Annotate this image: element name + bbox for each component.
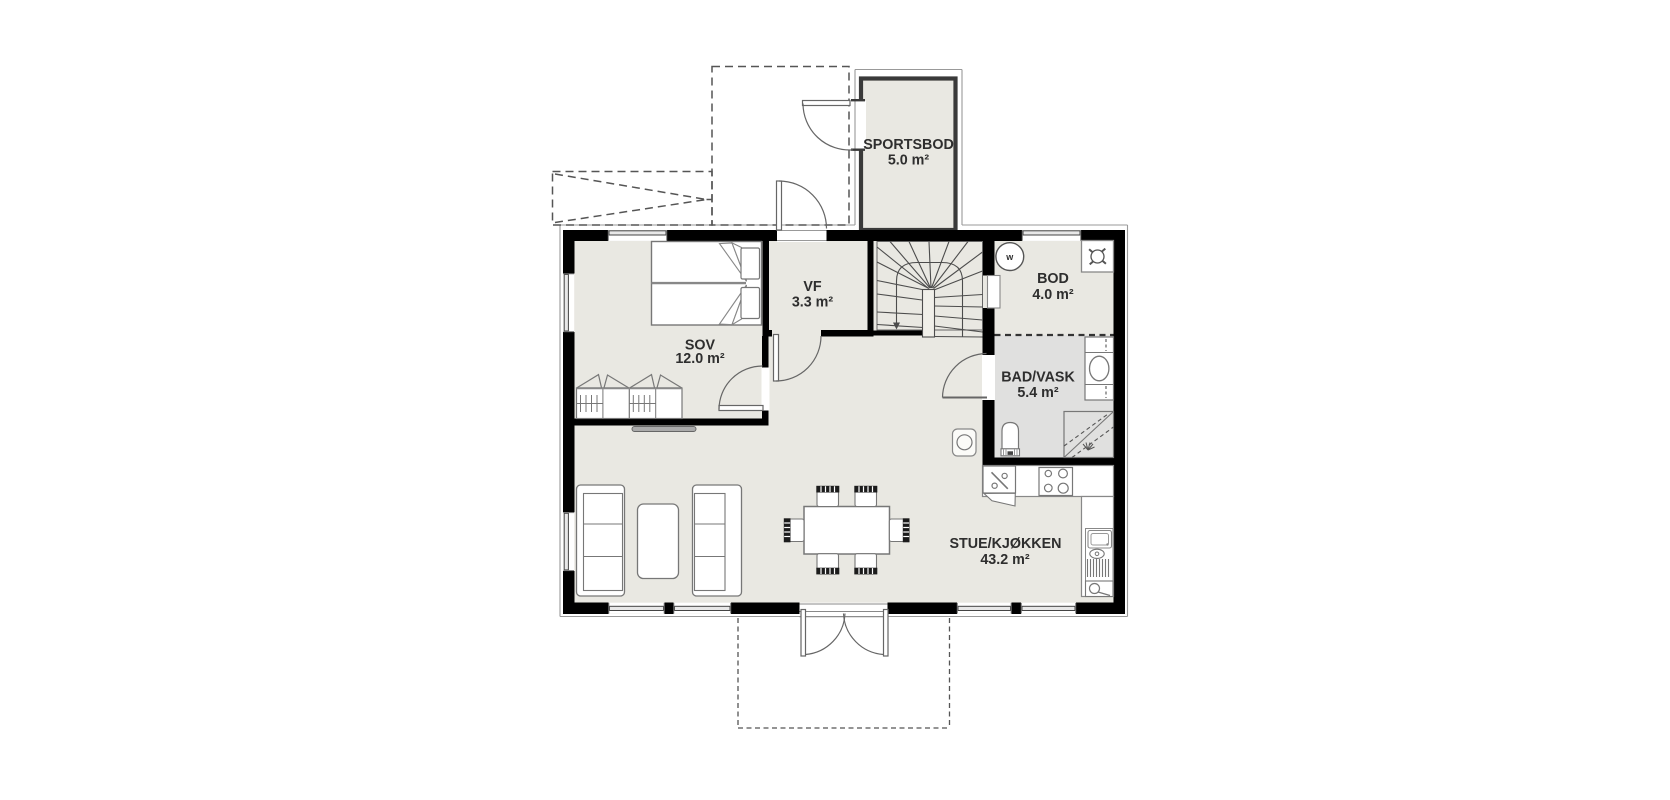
svg-text:3.3 m²: 3.3 m² <box>792 295 834 311</box>
svg-text:STUE/KJØKKEN: STUE/KJØKKEN <box>949 536 1061 552</box>
svg-text:BOD: BOD <box>1037 271 1069 287</box>
svg-text:w: w <box>1005 252 1014 262</box>
svg-text:SPORTSBOD: SPORTSBOD <box>863 137 954 153</box>
svg-text:4.0 m²: 4.0 m² <box>1032 287 1074 303</box>
svg-text:43.2 m²: 43.2 m² <box>980 552 1030 568</box>
svg-text:BAD/VASK: BAD/VASK <box>1001 370 1075 386</box>
svg-text:5.0 m²: 5.0 m² <box>888 153 930 169</box>
svg-text:5.4 m²: 5.4 m² <box>1017 385 1059 401</box>
svg-text:12.0 m²: 12.0 m² <box>675 351 725 367</box>
svg-text:VF: VF <box>803 279 822 295</box>
